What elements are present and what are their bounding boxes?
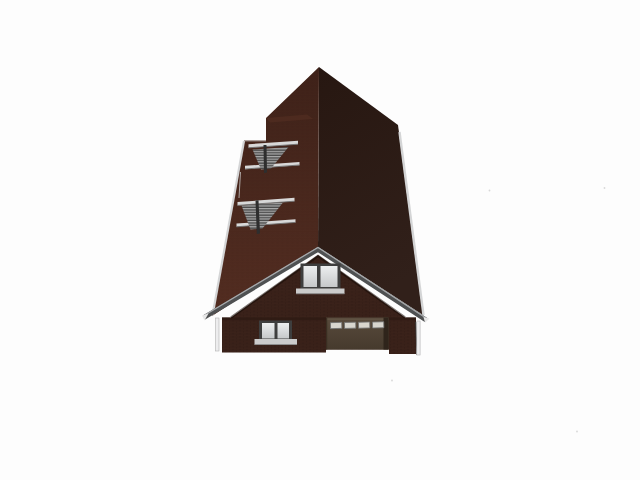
attic-window-pane-left [304,266,318,287]
artifact-dot [391,380,393,382]
house-render [0,0,640,480]
garage-window [358,322,369,328]
garage-jamb-shadow [384,318,389,350]
right-downspout [417,321,420,355]
ground-floor-window [255,321,298,345]
garage-door [326,318,389,350]
artifact-dot [604,187,606,189]
ground-window-pane-right [278,323,290,339]
attic-window-sill [296,289,345,294]
render-viewport [0,0,640,480]
artifact-dot [576,431,578,433]
artifact-dot [489,190,491,192]
attic-window [296,264,345,294]
attic-window-pane-right [321,266,338,287]
ground-window-sill [255,339,298,345]
ground-window-pane-left [262,323,275,339]
garage-window [330,322,341,328]
left-downspout [216,318,220,351]
garage-window [344,322,355,328]
louver-divider [264,145,268,173]
garage-window [372,322,383,328]
